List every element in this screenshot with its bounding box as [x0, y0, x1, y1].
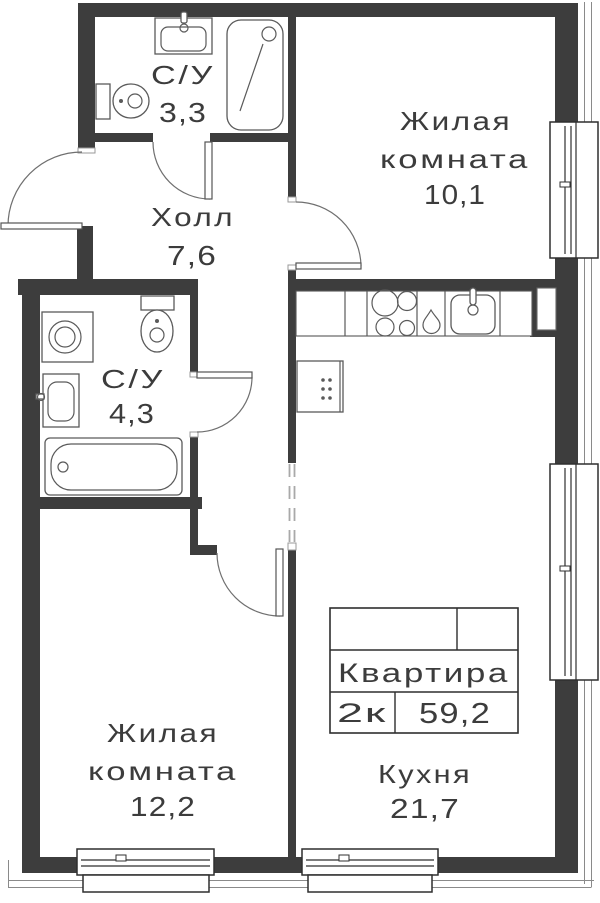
window-handle-tick	[560, 566, 570, 571]
room-area-living-room-1: 10,1	[424, 179, 486, 210]
wall-divider-middle	[288, 265, 296, 463]
room-label-kitchen: Кухня	[378, 759, 472, 789]
room-label-hall: Холл	[151, 202, 235, 232]
room-label-living-room-1-line2: комната	[380, 144, 530, 174]
wall-bathroom2-right-upper	[190, 295, 198, 377]
door-swing-arc	[217, 553, 280, 616]
toilet-tank	[96, 84, 110, 119]
toilet-icon	[141, 296, 174, 352]
cabinet-dot	[321, 396, 325, 400]
toilet-bowl	[113, 84, 149, 118]
door-swing-arc	[153, 142, 210, 199]
wall-left-upper	[78, 3, 95, 153]
window-kitchen-bottom	[302, 849, 438, 892]
wall-bathroom1-bottom-right	[210, 133, 296, 142]
cabinet-body	[297, 361, 343, 412]
sink-tap	[470, 288, 476, 305]
door-leaf	[276, 549, 283, 616]
door-leaf	[197, 372, 252, 378]
room-area-hall: 7,6	[167, 240, 217, 271]
wall-room2-door-step	[190, 545, 217, 555]
toilet-icon	[96, 84, 149, 119]
room-area-living-room-2: 12,2	[130, 791, 196, 822]
cabinet-dot	[321, 387, 325, 391]
window-frame	[550, 464, 598, 680]
sink-icon	[155, 12, 212, 54]
window-frame	[77, 849, 214, 875]
info-table-area-value: 59,2	[419, 698, 491, 730]
wall-entry-stub	[77, 226, 93, 282]
bathtub-outer	[45, 438, 182, 495]
wall-top	[78, 3, 576, 17]
window-handle-tick	[116, 855, 126, 861]
window-handle-tick	[339, 855, 349, 861]
wall-left-lower	[22, 293, 40, 873]
kitchen-opening-dashed	[290, 464, 295, 542]
wall-bathroom2-top	[18, 279, 198, 295]
door-swing-arc	[8, 152, 82, 226]
room-label-living-room-1-line1: Жилая	[400, 106, 512, 136]
door-bathroom-2	[197, 372, 252, 432]
jamb-cap	[190, 432, 198, 437]
window-sill	[308, 875, 432, 892]
window-frame	[302, 849, 438, 875]
toilet-tank	[141, 296, 174, 310]
room-area-kitchen: 21,7	[390, 793, 460, 824]
bathroom-2-fixtures	[36, 296, 182, 495]
bathtub-icon	[45, 438, 182, 495]
shower-icon	[227, 20, 283, 130]
wall-divider-upper	[288, 17, 296, 202]
duct-shaft-niche	[537, 288, 556, 330]
room-area-bathroom-2: 4,3	[109, 398, 155, 429]
floor-plan: Квартира 2к 59,2 С/У 3,3 Жилая комната 1…	[0, 0, 600, 903]
wall-bathroom2-right-lower	[190, 432, 198, 545]
door-swing-arc	[197, 377, 252, 432]
window-handle-tick	[560, 182, 570, 187]
room-label-bathroom-1: С/У	[151, 60, 215, 90]
toilet-flush-dot	[119, 99, 123, 103]
window-frame	[550, 122, 598, 258]
door-leaf	[296, 263, 361, 269]
door-leaf	[1, 223, 82, 229]
wall-divider-lower	[288, 543, 296, 857]
door-living-room-2	[217, 549, 283, 616]
sink-tap	[181, 12, 187, 23]
jamb-cap	[288, 197, 296, 202]
kitchen-sink-icon	[451, 288, 495, 334]
door-swing-arc	[296, 202, 361, 266]
jamb-cap	[288, 543, 296, 550]
cabinet-dot	[328, 378, 332, 382]
cabinet-icon	[297, 361, 343, 412]
floor-plan-page: Квартира 2к 59,2 С/У 3,3 Жилая комната 1…	[0, 0, 600, 903]
shower-tray	[227, 20, 283, 130]
washing-machine-icon	[42, 312, 93, 362]
sink-icon	[36, 374, 79, 427]
door-leaf	[205, 142, 212, 199]
room-label-living-room-2-line2: комната	[88, 756, 238, 786]
toilet-bowl	[141, 310, 173, 352]
jamb-cap	[288, 265, 296, 270]
cabinet-dot	[321, 378, 325, 382]
wall-bathroom2-bottom	[40, 497, 202, 509]
window-living-room-2	[77, 849, 214, 892]
cabinet-dot	[328, 387, 332, 391]
info-table-rooms-value: 2к	[337, 698, 387, 728]
kitchen-fixtures	[296, 288, 532, 412]
door-entry	[1, 152, 82, 229]
info-table: Квартира 2к 59,2	[330, 608, 518, 733]
room-area-bathroom-1: 3,3	[159, 97, 207, 128]
info-table-title: Квартира	[338, 658, 510, 688]
room-label-bathroom-2: С/У	[101, 364, 165, 394]
room-label-living-room-2-line1: Жилая	[107, 718, 219, 748]
toilet-flush-dot	[155, 319, 159, 323]
window-kitchen-right	[550, 464, 598, 680]
door-living-room-1	[296, 202, 361, 269]
wall-bathroom1-bottom-left	[95, 133, 153, 142]
window-sill	[83, 875, 209, 892]
door-bathroom-1	[153, 142, 212, 199]
window-living-room-1	[550, 122, 598, 258]
cabinet-dot	[328, 396, 332, 400]
washer-body	[42, 312, 93, 362]
